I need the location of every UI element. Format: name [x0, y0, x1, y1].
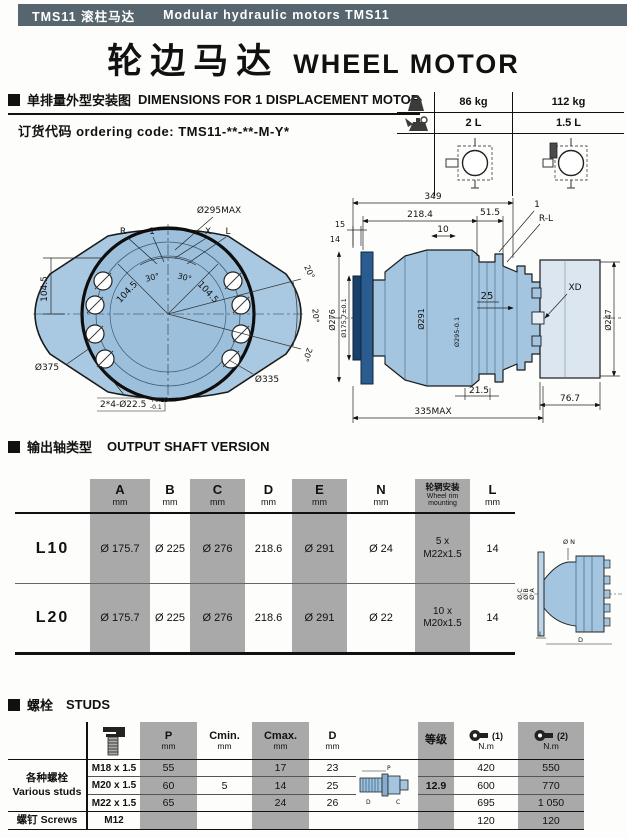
dim-10: 10	[437, 225, 449, 235]
shaft-da: Ø A	[528, 588, 536, 600]
page-title: 轮边马达WHEEL MOTOR	[0, 33, 627, 84]
label-1: 1	[149, 227, 155, 237]
front-view-drawing: R 1 X L Ø295MAX 104.5 104.5 104.5 30° 30…	[5, 196, 330, 436]
studs-header-empty	[8, 722, 88, 760]
header-bar-subtitle: Modular hydraulic motors TMS11	[163, 8, 390, 22]
label-d375: Ø375	[35, 362, 59, 373]
studs-cell: 60	[140, 777, 197, 795]
dim-14: 14	[330, 235, 340, 244]
shaft-cell: Ø 225	[150, 583, 190, 655]
shaft-cell: Ø 175.7	[90, 514, 150, 583]
dim-218: 218.4	[407, 210, 433, 220]
dim-247: Ø247	[603, 309, 613, 331]
shaft-dn: Ø N	[563, 538, 575, 546]
studs-cell: 25	[309, 777, 356, 795]
shaft-cell: Ø 291	[292, 583, 347, 655]
section-bullet-icon	[8, 94, 20, 106]
studs-header-Cmin: Cmin.mm	[197, 722, 252, 760]
studs-cmin-value: 5	[197, 777, 252, 795]
dim-767: 76.7	[560, 394, 580, 404]
header-bar: TMS11 滚柱马达 Modular hydraulic motors TMS1…	[18, 4, 627, 26]
shaft-header-L: Lmm	[470, 479, 515, 514]
label-l: L	[225, 227, 230, 237]
studs-thread: M20 x 1.5	[88, 777, 140, 795]
shaft-cell: Ø 225	[150, 514, 190, 583]
studs-cell	[418, 760, 454, 777]
studs-header-P: Pmm	[140, 722, 197, 760]
dim-349: 349	[424, 192, 441, 202]
shaft-cell: 218.6	[245, 583, 292, 655]
studs-cell	[356, 812, 418, 830]
label-20a: 20°	[302, 264, 316, 281]
studs-cell: 17	[252, 760, 309, 777]
studs-cell: 695	[454, 795, 518, 812]
shaft-cell: 218.6	[245, 514, 292, 583]
dim-335max: 335MAX	[414, 407, 451, 417]
shaft-cell: Ø 22	[347, 583, 415, 655]
stud-icon	[88, 722, 140, 760]
dim-15: 15	[335, 220, 345, 229]
studs-thread: M18 x 1.5	[88, 760, 140, 777]
dim-291: Ø291	[416, 308, 426, 330]
shaft-cell: Ø 276	[190, 514, 245, 583]
shaft-cell: Ø 276	[190, 583, 245, 655]
dim-215: 21.5	[469, 386, 489, 396]
section-dimensions-heading-en: DIMENSIONS FOR 1 DISPLACEMENT MOTOR	[138, 92, 420, 107]
shaft-l: L	[539, 630, 543, 638]
stud-p: P	[387, 765, 391, 772]
section-dimensions: 单排量外型安装图 DIMENSIONS FOR 1 DISPLACEMENT M…	[8, 90, 420, 115]
dim-276: Ø276	[327, 309, 337, 331]
shaft-row-label: L20	[15, 583, 90, 655]
shaft-cell: Ø 291	[292, 514, 347, 583]
label-r: R	[120, 227, 126, 237]
label-d335: Ø335	[255, 374, 279, 385]
label-xd: XD	[568, 283, 581, 293]
side-body	[330, 250, 623, 386]
shaft-header-rim: 轮辋安装Wheel rimmounting	[415, 479, 470, 514]
side-view-drawing: 349 218.4 51.5 10 15 14 1 R-L 25 XD Ø276…	[327, 186, 627, 438]
ordering-code: 订货代码 ordering code: TMS11-**-**-M-Y*	[18, 121, 290, 140]
weight-icon	[397, 92, 434, 113]
studs-grade-value: 12.9	[418, 777, 454, 795]
section-shaft-heading-en: OUTPUT SHAFT VERSION	[107, 439, 270, 454]
shaft-cell: Ø 24	[347, 514, 415, 583]
shaft-cell-rim: 5 xM22x1.5	[415, 514, 470, 583]
section-bullet-icon	[8, 699, 20, 711]
studs-cell	[418, 812, 454, 830]
shaft-header-N: Nmm	[347, 479, 415, 514]
label-20b: 20°	[310, 308, 320, 323]
studs-header-torque1: (1) N.m	[454, 722, 518, 760]
studs-thread: M22 x 1.5	[88, 795, 140, 812]
dim-175: Ø175.7±0.1	[340, 298, 348, 338]
studs-cell: 55	[140, 760, 197, 777]
studs-header-torque2: (2) N.m	[518, 722, 584, 760]
label-20c: 20°	[301, 347, 314, 363]
section-studs-heading-cn: 螺栓	[27, 695, 53, 714]
section-dimensions-heading-cn: 单排量外型安装图	[27, 90, 131, 109]
weight-2: 112 kg	[512, 92, 624, 113]
shaft-cell: 14	[470, 583, 515, 655]
studs-cell: 24	[252, 795, 309, 812]
oil-2: 1.5 L	[512, 113, 624, 134]
label-104-left: 104.5	[40, 276, 50, 302]
shaft-header-empty	[15, 479, 90, 514]
shaft-cell: 14	[470, 514, 515, 583]
datasheet-page: { "header_bar": {"left": "TMS11 滚柱马达", "…	[0, 0, 627, 838]
stud-c: C	[396, 799, 400, 806]
output-shaft-table: Amm Bmm Cmm Dmm Emm Nmm 轮辋安装Wheel rimmou…	[15, 479, 515, 655]
header-bar-model: TMS11 滚柱马达	[32, 6, 135, 25]
studs-cell: 550	[518, 760, 584, 777]
dim-295: Ø295-0.1	[453, 317, 461, 347]
stud-drawing: P D C	[356, 760, 418, 812]
studs-header-Cmax: Cmax.mm	[252, 722, 309, 760]
label-rl: R-L	[539, 214, 553, 224]
section-output-shaft: 输出轴类型 OUTPUT SHAFT VERSION	[8, 437, 270, 456]
shaft-header-E: Emm	[292, 479, 347, 514]
section-shaft-heading-cn: 输出轴类型	[27, 437, 92, 456]
weight-1: 86 kg	[434, 92, 512, 113]
page-title-en: WHEEL MOTOR	[293, 49, 520, 79]
oil-can-icon	[397, 113, 434, 134]
label-bolt-note: 2*4-Ø22.5	[100, 399, 146, 410]
studs-group-various: 各种螺栓 Various studs	[8, 760, 88, 812]
studs-cell: 23	[309, 760, 356, 777]
stud-d: D	[366, 799, 371, 806]
studs-cell: 770	[518, 777, 584, 795]
studs-thread: M12	[88, 812, 140, 830]
studs-cell: 65	[140, 795, 197, 812]
studs-cell: 420	[454, 760, 518, 777]
studs-cell: 14	[252, 777, 309, 795]
section-studs: 螺栓 STUDS	[8, 695, 110, 714]
label-d295max: Ø295MAX	[197, 205, 241, 216]
shaft-cell: Ø 175.7	[90, 583, 150, 655]
studs-cell: 600	[454, 777, 518, 795]
section-bullet-icon	[8, 441, 20, 453]
studs-cell	[197, 812, 252, 830]
shaft-profile-drawing: Ø N Ø C Ø B Ø A L D	[516, 534, 626, 654]
section-studs-heading-en: STUDS	[66, 697, 110, 712]
studs-cell: 120	[454, 812, 518, 830]
studs-cell: 26	[309, 795, 356, 812]
studs-table: Pmm Cmin.mm Cmax.mm Dmm 等级 (1) N.m (2) N…	[8, 722, 584, 830]
studs-header-drawing-gap	[356, 722, 418, 760]
studs-cell	[252, 812, 309, 830]
shaft-d: D	[578, 636, 583, 644]
spec-table: 86 kg 112 kg 2 L 1.5 L	[397, 92, 624, 196]
label-1: 1	[534, 200, 540, 210]
oil-1: 2 L	[434, 113, 512, 134]
studs-cell	[140, 812, 197, 830]
studs-header-grade: 等级	[418, 722, 454, 760]
studs-group-screws: 螺钉 Screws	[8, 812, 88, 830]
shaft-header-A: Amm	[90, 479, 150, 514]
studs-cell	[309, 812, 356, 830]
shaft-cell-rim: 10 xM20x1.5	[415, 583, 470, 655]
label-x: X	[205, 227, 211, 237]
shaft-header-D: Dmm	[245, 479, 292, 514]
studs-header-D: Dmm	[309, 722, 356, 760]
studs-cell	[197, 795, 252, 812]
studs-cell: 1 050	[518, 795, 584, 812]
dim-51: 51.5	[480, 208, 500, 218]
shaft-header-C: Cmm	[190, 479, 245, 514]
page-title-cn: 轮边马达	[107, 42, 279, 81]
studs-cell	[418, 795, 454, 812]
dim-25: 25	[481, 291, 494, 302]
studs-cell	[197, 760, 252, 777]
studs-cell: 120	[518, 812, 584, 830]
shaft-row-label: L10	[15, 514, 90, 583]
shaft-header-B: Bmm	[150, 479, 190, 514]
label-bolt-tol-dn: -0.1	[150, 404, 162, 411]
